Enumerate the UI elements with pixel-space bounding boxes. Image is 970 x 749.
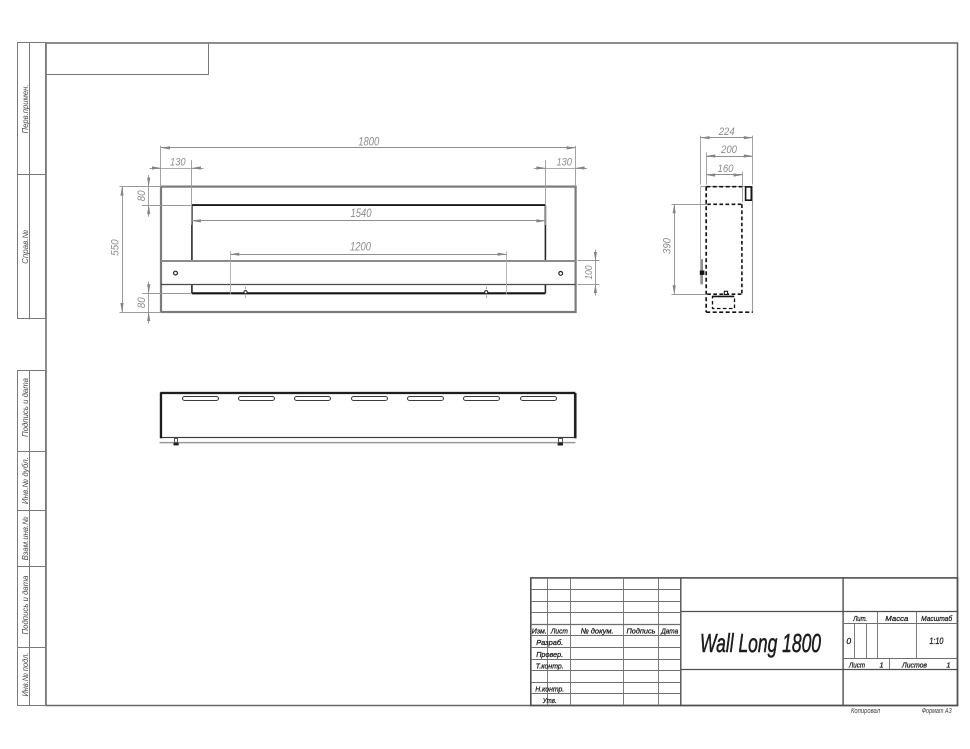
svg-text:Инв.№ дубл.: Инв.№ дубл. [21,457,30,504]
svg-text:100: 100 [583,265,595,279]
svg-text:1540: 1540 [351,208,372,220]
svg-text:Утв.: Утв. [542,696,557,705]
svg-text:Формат А3: Формат А3 [922,706,952,715]
svg-text:№ докум.: № докум. [581,627,614,636]
svg-text:1: 1 [879,660,883,669]
svg-text:1: 1 [946,660,950,669]
svg-text:Лист: Лист [848,660,865,669]
svg-text:Т.контр.: Т.контр. [536,661,564,670]
svg-text:130: 130 [556,156,572,168]
svg-text:Подпись и дата: Подпись и дата [21,377,30,437]
svg-text:Инв.№ подл.: Инв.№ подл. [21,653,30,697]
svg-text:1:10: 1:10 [929,636,944,647]
svg-text:0: 0 [846,636,851,646]
svg-text:Дата: Дата [660,627,678,636]
svg-text:Подпись: Подпись [627,627,656,636]
svg-text:80: 80 [136,190,148,202]
svg-text:1200: 1200 [350,242,371,254]
svg-text:200: 200 [720,144,738,156]
svg-text:Подпись и дата: Подпись и дата [21,575,30,635]
svg-text:Провер.: Провер. [536,650,563,659]
svg-text:130: 130 [170,156,186,168]
svg-text:Wall Long 1800: Wall Long 1800 [700,628,821,658]
svg-text:Масштаб: Масштаб [921,614,953,623]
svg-text:224: 224 [718,126,735,138]
svg-text:390: 390 [662,237,674,254]
svg-text:Взам.инв.№: Взам.инв.№ [21,516,30,560]
svg-text:Изм.: Изм. [532,627,547,636]
svg-text:Листов: Листов [901,660,927,669]
svg-text:Лит.: Лит. [852,614,867,623]
svg-text:Копировал: Копировал [851,706,880,715]
svg-text:Н.контр.: Н.контр. [535,685,564,694]
svg-text:Разраб.: Разраб. [536,638,563,647]
svg-text:Масса: Масса [885,614,908,623]
svg-text:550: 550 [109,239,121,256]
svg-text:160: 160 [718,163,735,175]
svg-text:80: 80 [136,296,148,308]
svg-text:Справ.№: Справ.№ [21,230,30,264]
svg-text:Лист: Лист [550,627,568,636]
svg-text:Перв.примен.: Перв.примен. [21,85,30,134]
svg-text:1800: 1800 [358,136,379,148]
